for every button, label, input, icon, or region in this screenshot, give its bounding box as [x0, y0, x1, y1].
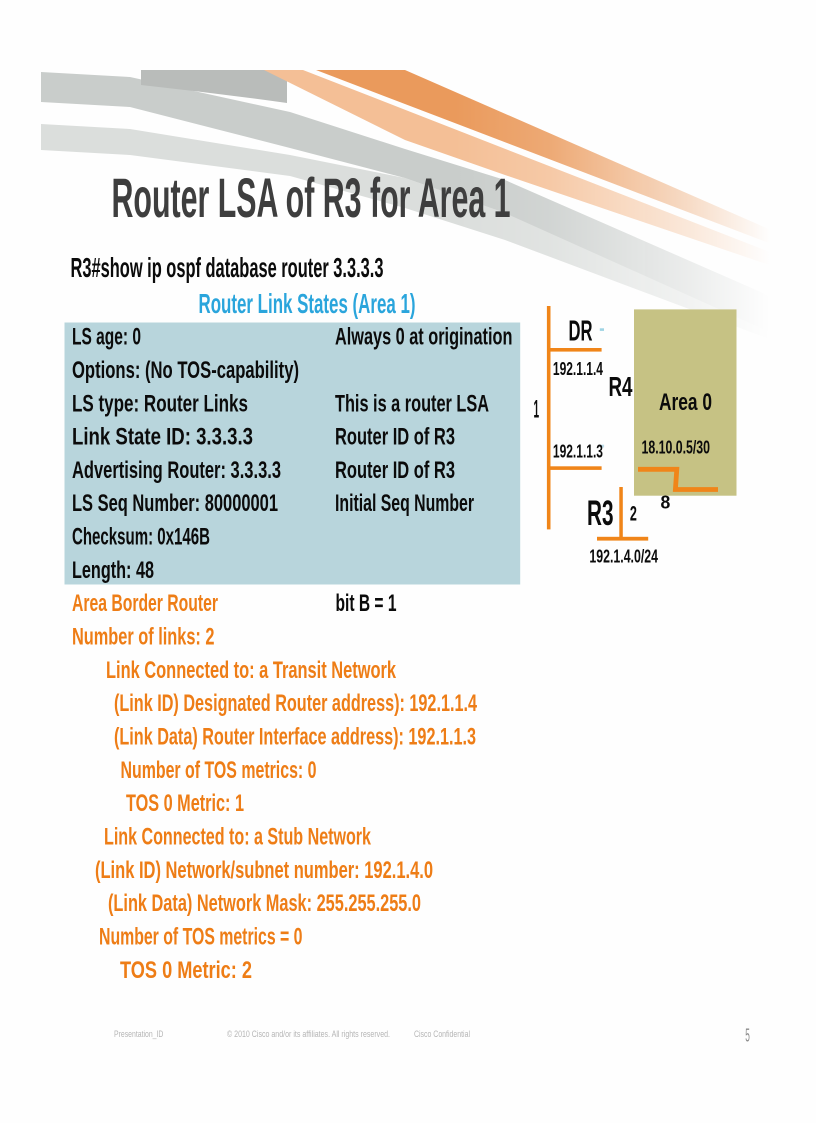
- svg-text:TOS 0 Metric: 2: TOS 0 Metric: 2: [120, 957, 252, 984]
- svg-text:8: 8: [661, 493, 671, 513]
- svg-text:Number of links: 2: Number of links: 2: [72, 624, 215, 651]
- svg-text:(Link Data) Router Interface a: (Link Data) Router Interface address): 1…: [114, 724, 476, 751]
- svg-text:Initial Seq Number: Initial Seq Number: [335, 490, 474, 517]
- svg-text:18.10.0.5/30: 18.10.0.5/30: [642, 437, 711, 458]
- svg-text:Always 0 at origination: Always 0 at origination: [335, 324, 512, 351]
- svg-text:Number of TOS metrics = 0: Number of TOS metrics = 0: [99, 924, 303, 951]
- svg-text:(Link ID) Designated Router ad: (Link ID) Designated Router address): 19…: [114, 690, 477, 717]
- svg-text:Link State ID: 3.3.3.3: Link State ID: 3.3.3.3: [72, 424, 253, 451]
- svg-text:Area 0: Area 0: [659, 389, 712, 416]
- svg-text:TOS 0 Metric: 1: TOS 0 Metric: 1: [126, 790, 244, 817]
- svg-text:LS age: 0: LS age: 0: [72, 324, 141, 351]
- svg-text:Router ID of R3: Router ID of R3: [335, 424, 455, 451]
- svg-text:192.1.4.0/24: 192.1.4.0/24: [589, 546, 658, 567]
- svg-text:5: 5: [745, 1025, 750, 1046]
- svg-text:2: 2: [630, 503, 637, 526]
- svg-text:Area Border Router: Area Border Router: [72, 590, 218, 617]
- svg-text:R3#show ip ospf database route: R3#show ip ospf database router 3.3.3.3: [71, 252, 384, 283]
- svg-text:Options: (No TOS-capability): Options: (No TOS-capability): [72, 357, 299, 384]
- svg-text:Cisco Confidential: Cisco Confidential: [414, 1029, 470, 1040]
- svg-text:R4: R4: [609, 371, 633, 402]
- svg-text:Presentation_ID: Presentation_ID: [114, 1029, 164, 1040]
- svg-text:LS type: Router Links: LS type: Router Links: [72, 390, 248, 417]
- svg-text:1: 1: [534, 396, 540, 424]
- svg-text:LS Seq Number: 80000001: LS Seq Number: 80000001: [72, 490, 278, 517]
- svg-text:Advertising Router: 3.3.3.3: Advertising Router: 3.3.3.3: [72, 457, 281, 484]
- svg-text:Router LSA of R3 for Area 1: Router LSA of R3 for Area 1: [112, 167, 511, 229]
- svg-text:(Link ID) Network/subnet numbe: (Link ID) Network/subnet number: 192.1.4…: [95, 857, 433, 884]
- svg-text:Router ID of R3: Router ID of R3: [335, 457, 455, 484]
- svg-text:(Link Data) Network Mask: 255.: (Link Data) Network Mask: 255.255.255.0: [108, 890, 421, 917]
- svg-text:Link Connected to: a Transit N: Link Connected to: a Transit Network: [106, 657, 396, 684]
- svg-text:Link Connected to: a Stub Netw: Link Connected to: a Stub Network: [104, 824, 371, 851]
- svg-text:192.1.1.3: 192.1.1.3: [553, 440, 603, 461]
- svg-text:Router Link States (Area 1): Router Link States (Area 1): [199, 288, 416, 319]
- svg-text:Checksum: 0x146B: Checksum: 0x146B: [72, 524, 210, 551]
- svg-text:R3: R3: [587, 493, 614, 533]
- svg-text:Number of TOS metrics: 0: Number of TOS metrics: 0: [121, 757, 317, 784]
- svg-text:DR: DR: [569, 316, 593, 348]
- svg-text:Length: 48: Length: 48: [72, 557, 154, 584]
- svg-text:192.1.1.4: 192.1.1.4: [553, 358, 604, 379]
- svg-text:© 2010 Cisco and/or its affili: © 2010 Cisco and/or its affiliates. All …: [227, 1029, 390, 1040]
- svg-text:This is a router LSA: This is a router LSA: [335, 390, 489, 417]
- svg-text:bit B = 1: bit B = 1: [336, 590, 397, 617]
